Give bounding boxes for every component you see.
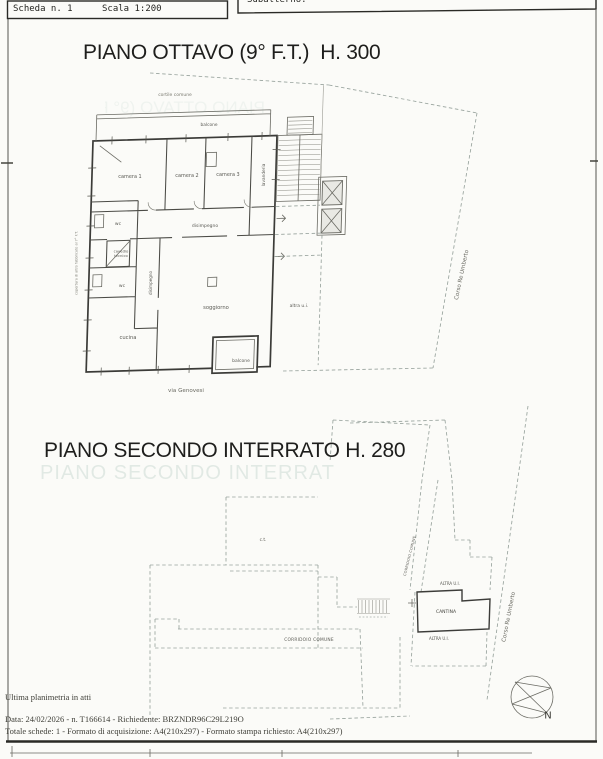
footer-line3: Totale schede: 1 - Formato di acquisizio… [5, 726, 342, 736]
stair-hatch [276, 116, 322, 201]
room-label-cavedio: cavedio tecnico [114, 250, 129, 259]
room-label-ct: c.t. [260, 538, 267, 543]
room-label-balcone-top: balcone [200, 123, 217, 128]
scale-label: Scala 1:200 [102, 4, 162, 14]
room-label-wc-top: wc [115, 221, 121, 226]
room-label-cucina: cucina [119, 335, 136, 341]
compass-north-label: N [544, 710, 551, 722]
room-label-soggiorno: soggiorno [203, 305, 229, 311]
plan-linework [0, 0, 603, 759]
basement-stair-hatch [357, 599, 390, 617]
label-corridoio-comune: CORRIDOIO COMUNE [284, 638, 334, 643]
label-altra-ui-upper: altra u.i. [290, 303, 309, 308]
room-label-cortile: cortile comune [158, 92, 192, 97]
footer-line2: Data: 24/02/2026 - n. T166614 - Richiede… [5, 714, 244, 724]
room-label-cantina: CANTINA [436, 609, 456, 614]
elevator-icon [317, 176, 347, 235]
sheet-number: Scheda n. 1 [13, 4, 73, 14]
room-label-camera2: camera 2 [175, 173, 198, 179]
label-altra-ui-top: ALTRA U.I. [440, 582, 460, 587]
room-label-disimpegno-v: disimpegno [149, 271, 154, 295]
page-frame [1, 0, 598, 757]
room-label-camera1: camera 1 [118, 174, 141, 180]
label-altra-ui-bottom: ALTRA U.I. [429, 637, 449, 642]
subalterno-clipped: Subalterno: [247, 0, 367, 11]
room-label-camera3: camera 3 [216, 172, 239, 178]
upper-plan-lines [82, 73, 477, 377]
footer-line1: Ultima planimetria in atti [5, 692, 91, 702]
subalterno-label: Subalterno: [247, 0, 367, 5]
lower-plan-title: PIANO SECONDO INTERRATO H. 280 [44, 439, 405, 463]
room-label-lavanderia: lavanderia [262, 164, 267, 187]
room-label-wc-bottom: wc [119, 283, 125, 288]
room-label-disimpegno: disimpegno [192, 223, 218, 228]
street-label-via-genovesi: via Genovesi [168, 388, 204, 394]
room-label-balcone-bottom: balcone [232, 358, 250, 363]
cadastral-floorplan-sheet: Scheda n. 1 Scala 1:200 Subalterno: PIAN… [0, 0, 603, 759]
upper-plan-title: PIANO OTTAVO (9° F.T.) H. 300 [83, 41, 380, 65]
edge-note-upper: copertura di altro fabbricato al 7° F.T. [75, 231, 79, 295]
